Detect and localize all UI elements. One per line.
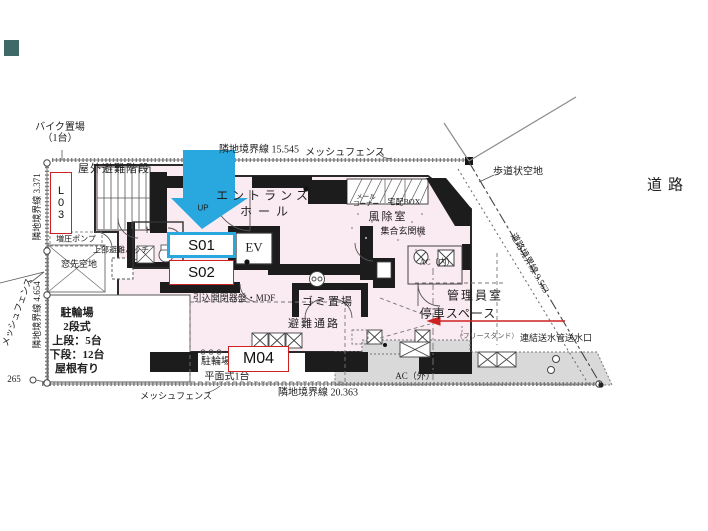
ev-label: EV	[245, 241, 262, 256]
stair-area	[97, 167, 150, 230]
boundary-left-top-label: 隣地境界線 3.371	[32, 173, 42, 241]
boundary-bottom-label: 隣地境界線 20.363	[278, 387, 358, 398]
entrance-unit-label: 集合玄関機	[380, 226, 425, 236]
unit-tag-s01[interactable]: S01	[167, 232, 236, 258]
mail-corner-label: メールコーナー	[353, 194, 379, 209]
floorplan-drawing	[0, 0, 708, 531]
bicycle-label-5: 屋根有り	[55, 363, 99, 375]
manager-room-label: 管理員室	[447, 289, 503, 302]
mesh-fence-top-label: メッシュフェンス	[305, 147, 385, 158]
unit-tag-m04[interactable]: M04	[228, 346, 289, 372]
floorplan-screenshot: バイク置場（1台） 屋外避難階段 隣地境界線 3.371 メッシュフェンス 隣地…	[0, 0, 708, 531]
entrance-hall-label-2: ホール	[240, 205, 294, 218]
bike-flat-label-2: 平面式1台	[205, 371, 250, 382]
legend-square	[4, 40, 19, 56]
outdoor-stairs-label: 屋外避難階段	[78, 163, 150, 175]
garbage-label: ゴミ置場	[302, 296, 354, 308]
ac-out-label: AC（外）	[395, 371, 435, 381]
boundary-ray-left	[444, 123, 469, 161]
windbreak-label: 風除室	[369, 211, 408, 223]
boundary-top-label: 隣地境界線 15.545	[219, 144, 299, 155]
entrance-hall-label-1: エントランス	[216, 189, 312, 202]
delivery-box-label: 宅配BOX	[388, 199, 421, 208]
bicycle-label-2: 2段式	[63, 321, 91, 333]
bicycle-label-1: 駐輪場	[61, 307, 94, 319]
sidewalk-space-label: 歩道状空地	[493, 166, 543, 177]
evac-route-label: 避難通路	[288, 318, 340, 330]
corner-marker-se	[598, 382, 603, 387]
standpipe-prefix-label: （フリースタンド）	[456, 333, 519, 341]
road-label: 道路	[647, 178, 689, 195]
meter-symbol	[310, 272, 325, 287]
mesh-fence-bottom-label: メッシュフェンス	[140, 391, 212, 401]
bike-flat-label-1: 駐輪場	[201, 356, 231, 367]
pump-label: 増圧ポンプ	[56, 236, 96, 245]
bike-area-label: バイク置場（1台）	[35, 122, 85, 144]
bicycle-label-3: 上段：5台	[52, 335, 102, 347]
unit-tag-l03[interactable]: L03	[50, 172, 72, 234]
ac-in-label: AC（内）	[419, 259, 454, 268]
boundary-left-bottom-label: 隣地境界線 4.654	[32, 281, 42, 349]
mdf-label: 引込開閉器盤・MDF	[193, 293, 276, 303]
boundary-ray-right	[469, 97, 576, 161]
bicycle-label-4: 下段：12台	[50, 349, 105, 361]
upper-hatch-label: 上部避難ハッチ	[93, 247, 149, 256]
stop-space-label: 停車スペース	[420, 307, 497, 320]
dim-265-label: 265	[7, 374, 21, 384]
toilet-label: トイレ	[144, 227, 168, 236]
unit-tag-s02[interactable]: S02	[169, 260, 234, 285]
window-space-label: 窓先空地	[61, 259, 97, 269]
pavement	[335, 352, 612, 385]
up-label: UP	[197, 205, 208, 214]
standpipe-label: 連結送水管送水口	[520, 333, 592, 343]
